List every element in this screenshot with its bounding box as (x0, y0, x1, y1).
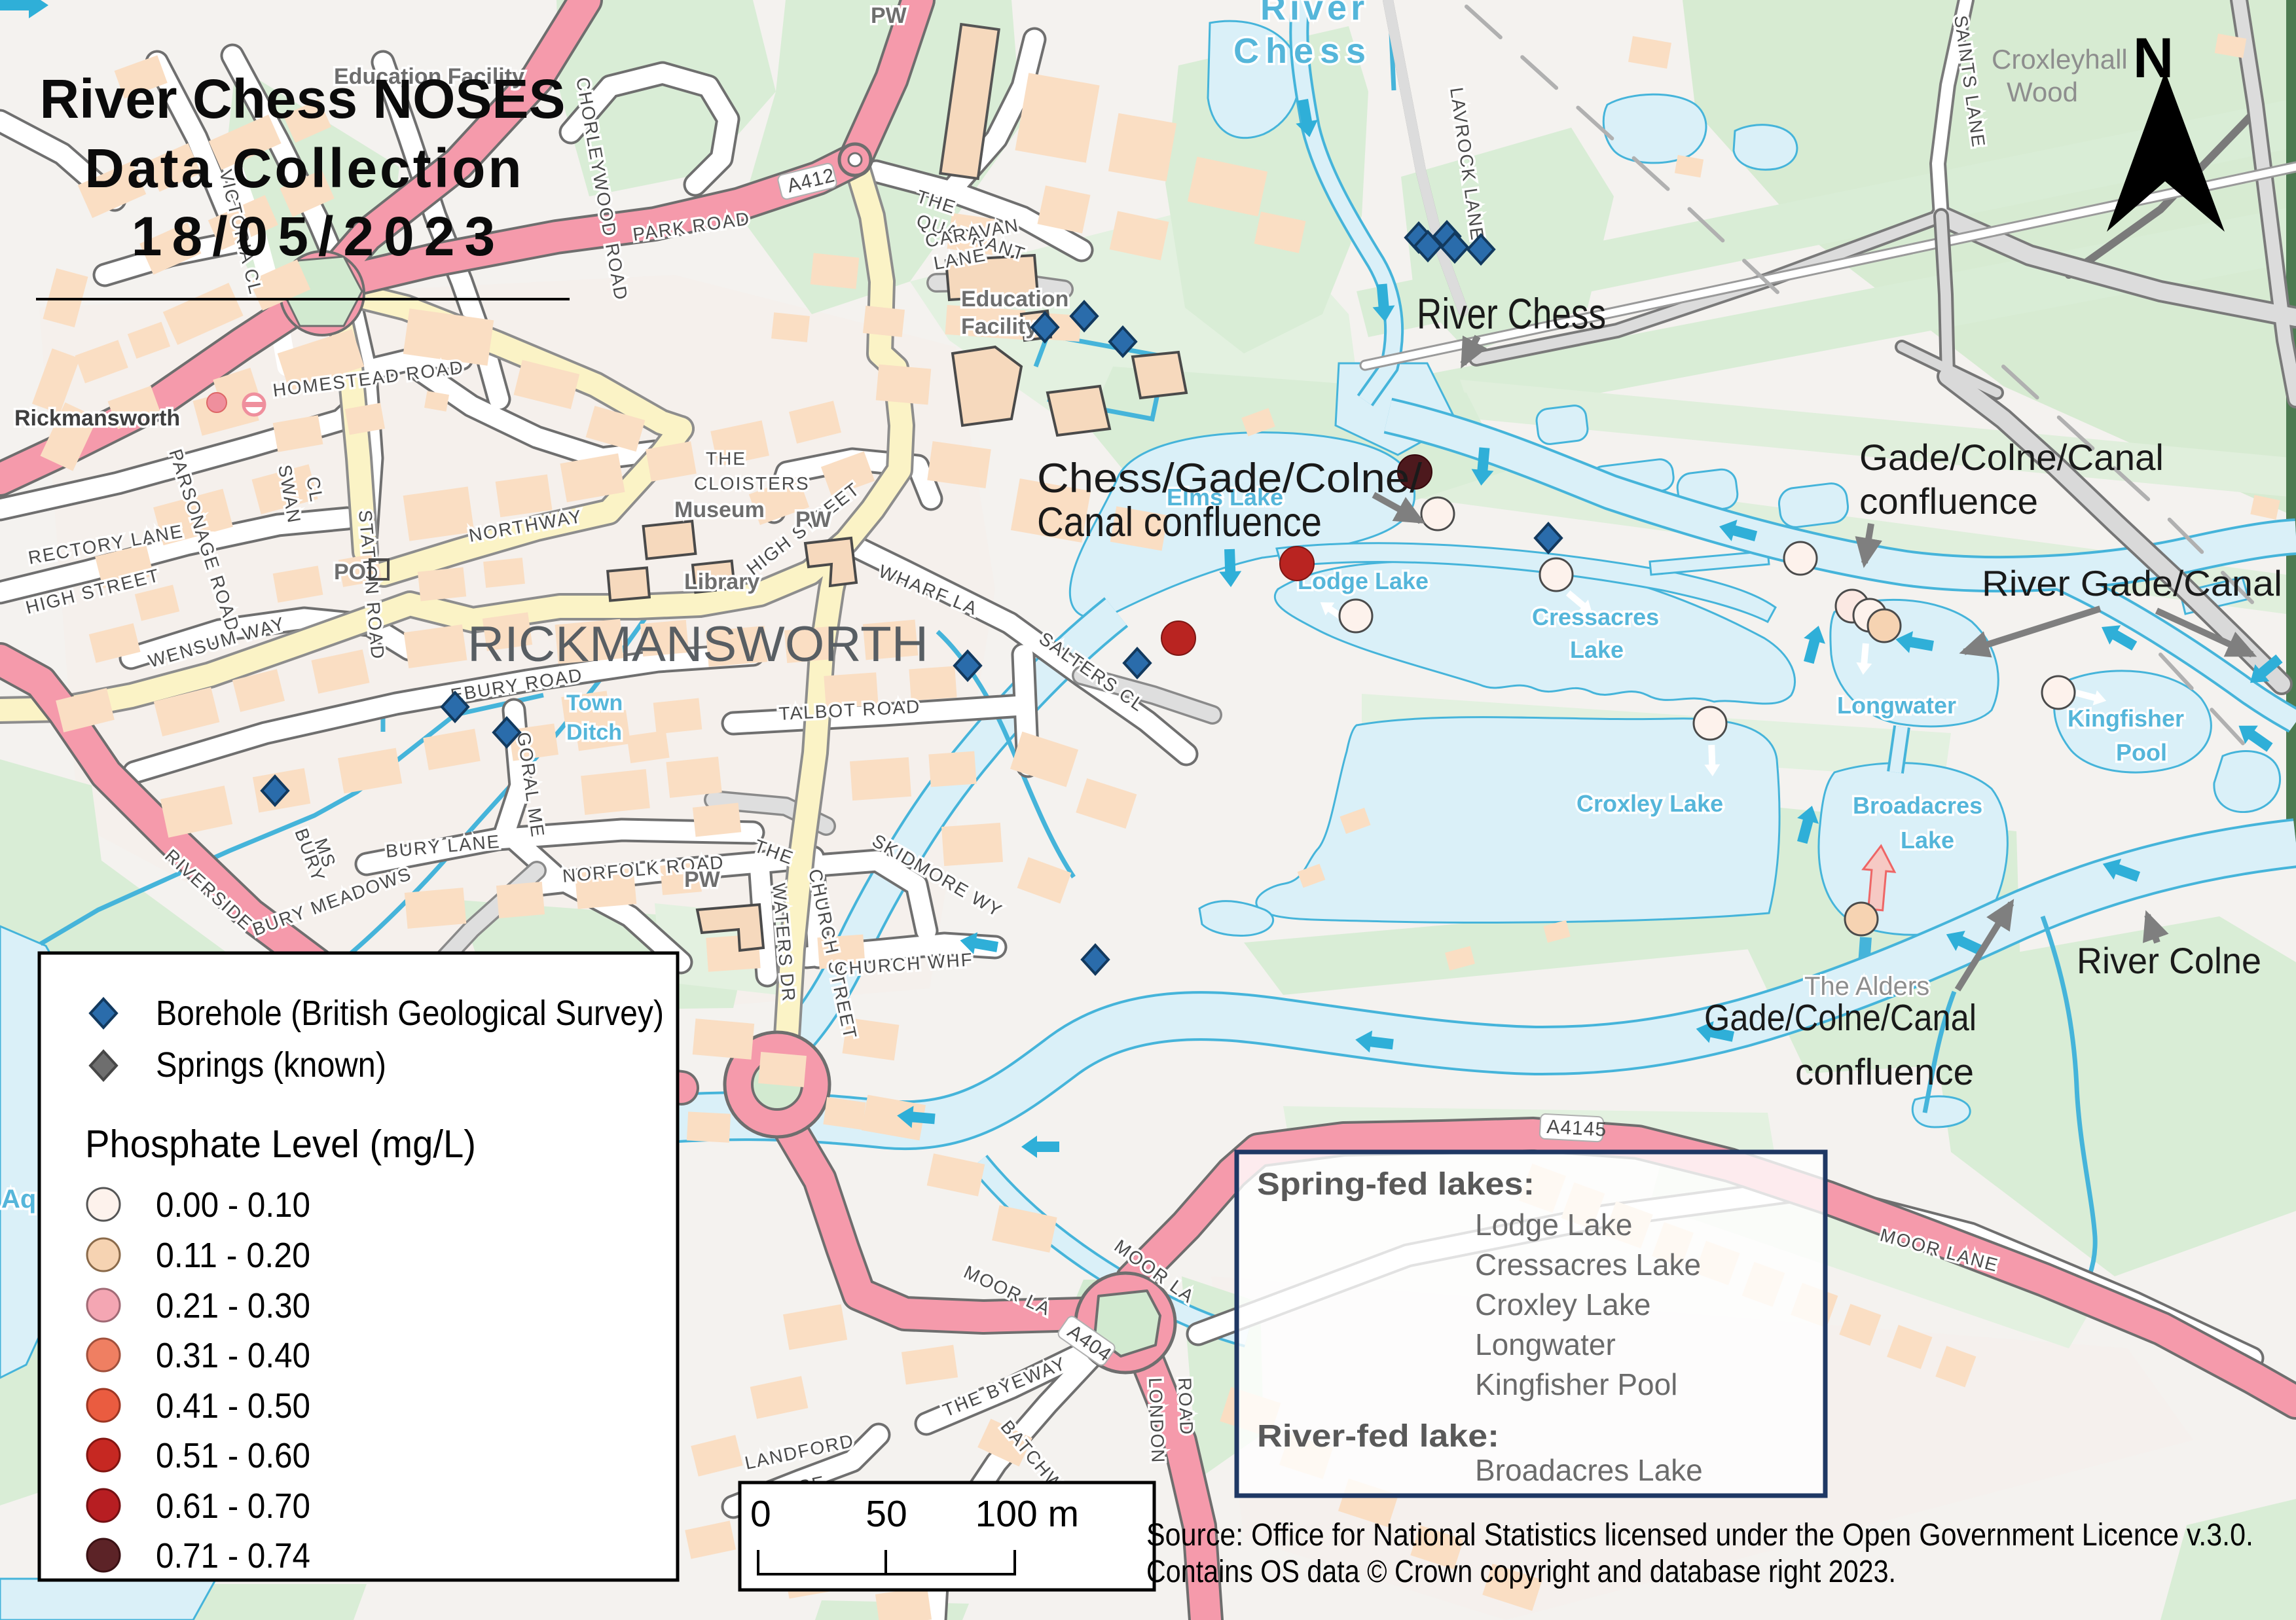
svg-text:0: 0 (750, 1493, 771, 1535)
svg-text:0.00 - 0.10: 0.00 - 0.10 (156, 1185, 310, 1225)
svg-text:PW: PW (795, 507, 832, 532)
svg-text:Lake: Lake (1570, 636, 1624, 663)
svg-text:River Colne: River Colne (2077, 940, 2261, 981)
svg-text:Croxley Lake: Croxley Lake (1576, 790, 1723, 817)
svg-text:Borehole (British Geological S: Borehole (British Geological Survey) (156, 994, 664, 1033)
svg-text:Gade/Colne/Canal: Gade/Colne/Canal (1704, 997, 1977, 1039)
svg-text:0.61 - 0.70: 0.61 - 0.70 (156, 1486, 310, 1526)
svg-text:0.21 - 0.30: 0.21 - 0.30 (156, 1286, 310, 1325)
svg-text:0.31 - 0.40: 0.31 - 0.40 (156, 1336, 310, 1375)
svg-text:50: 50 (866, 1493, 907, 1535)
svg-text:0.11 - 0.20: 0.11 - 0.20 (156, 1236, 310, 1275)
svg-text:confluence: confluence (1795, 1051, 1974, 1093)
svg-text:Pool: Pool (2116, 739, 2167, 766)
svg-text:Cressacres: Cressacres (1532, 603, 1659, 630)
svg-text:18/05/2023: 18/05/2023 (132, 206, 505, 267)
svg-text:Education: Education (961, 287, 1068, 312)
svg-text:Facility: Facility (961, 314, 1038, 339)
svg-text:Data Collection: Data Collection (84, 137, 524, 199)
svg-text:Spring-fed lakes:: Spring-fed lakes: (1257, 1167, 1535, 1202)
svg-text:PO: PO (334, 560, 366, 585)
svg-text:River Chess NOSES: River Chess NOSES (39, 68, 565, 130)
svg-text:Croxley Lake: Croxley Lake (1475, 1287, 1650, 1322)
svg-text:Museum: Museum (674, 497, 765, 522)
svg-text:confluence: confluence (1859, 480, 2038, 522)
svg-text:Aq: Aq (1, 1185, 36, 1214)
svg-text:Longwater: Longwater (1837, 692, 1956, 719)
svg-text:Longwater: Longwater (1475, 1327, 1616, 1361)
svg-text:Lake: Lake (1901, 827, 1954, 854)
svg-text:River: River (1260, 0, 1368, 27)
svg-text:Lodge Lake: Lodge Lake (1298, 567, 1429, 594)
svg-text:River Gade/Canal: River Gade/Canal (1982, 563, 2282, 603)
svg-text:Ditch: Ditch (566, 720, 622, 745)
svg-text:ROAD: ROAD (1175, 1377, 1197, 1436)
svg-text:Canal confluence: Canal confluence (1037, 499, 1322, 545)
svg-text:Gade/Colne/Canal: Gade/Colne/Canal (1859, 437, 2164, 478)
svg-text:Chess: Chess (1233, 31, 1372, 71)
svg-text:100 m: 100 m (975, 1493, 1079, 1535)
svg-text:LONDON: LONDON (1145, 1377, 1169, 1464)
svg-text:Kingfisher: Kingfisher (2068, 705, 2184, 732)
svg-text:THE: THE (706, 448, 746, 469)
svg-text:Library: Library (684, 569, 759, 594)
svg-text:Lodge Lake: Lodge Lake (1475, 1208, 1632, 1242)
svg-text:PW: PW (684, 867, 721, 892)
svg-text:RICKMANSWORTH: RICKMANSWORTH (467, 617, 928, 672)
svg-text:0.51 - 0.60: 0.51 - 0.60 (156, 1436, 310, 1475)
svg-text:Source: Office for National St: Source: Office for National Statistics l… (1146, 1518, 2253, 1553)
svg-text:A4145: A4145 (1546, 1116, 1607, 1141)
svg-text:Springs (known): Springs (known) (156, 1045, 386, 1085)
svg-text:CLOISTERS: CLOISTERS (694, 473, 810, 494)
svg-text:Broadacres: Broadacres (1853, 792, 1982, 819)
svg-text:Town: Town (566, 691, 623, 715)
svg-text:PW: PW (871, 3, 907, 28)
svg-text:Contains OS data © Crown copyr: Contains OS data © Crown copyright and d… (1146, 1555, 1896, 1589)
svg-text:Cressacres Lake: Cressacres Lake (1475, 1248, 1701, 1282)
svg-text:Kingfisher Pool: Kingfisher Pool (1475, 1367, 1677, 1401)
svg-text:Rickmansworth: Rickmansworth (14, 406, 180, 431)
svg-text:River Chess: River Chess (1417, 289, 1606, 338)
svg-text:River-fed lake:: River-fed lake: (1257, 1419, 1499, 1454)
svg-text:0.41 - 0.50: 0.41 - 0.50 (156, 1386, 310, 1426)
svg-text:Wood: Wood (2007, 77, 2078, 107)
svg-text:N: N (2133, 27, 2174, 90)
svg-text:Broadacres Lake: Broadacres Lake (1475, 1453, 1703, 1487)
svg-text:Phosphate Level (mg/L): Phosphate Level (mg/L) (85, 1123, 476, 1166)
svg-text:0.71 - 0.74: 0.71 - 0.74 (156, 1536, 310, 1575)
svg-text:Croxleyhall: Croxleyhall (1992, 44, 2128, 75)
svg-text:Chess/Gade/Colne/: Chess/Gade/Colne/ (1037, 456, 1423, 501)
